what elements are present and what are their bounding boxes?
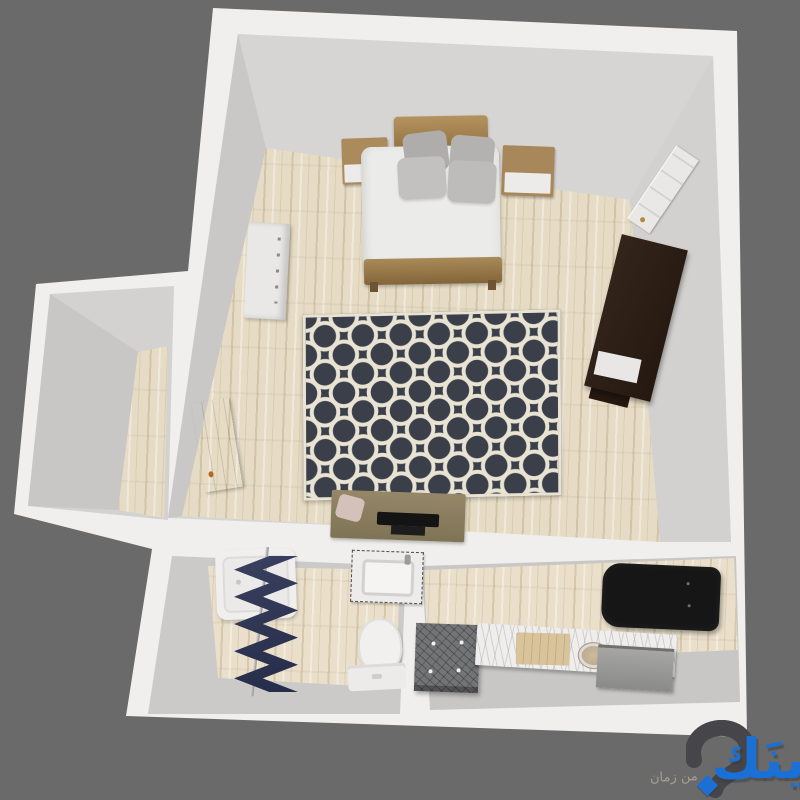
toilet-flush-button-icon [372, 674, 382, 680]
wardrobe-shelf-gap [594, 351, 642, 384]
vanity-sink [350, 550, 424, 604]
bed-leg-left [370, 282, 378, 292]
watermark: من زمان وينَك [600, 700, 800, 800]
dresser-handle-dots [274, 238, 280, 304]
monitor [377, 512, 440, 528]
cutting-board [516, 632, 571, 665]
dresser-white [244, 222, 291, 320]
bed-pillow-front-right [447, 160, 497, 204]
tuft-button-icon [428, 669, 432, 673]
faucet-icon [404, 555, 410, 565]
monitor-base [391, 525, 425, 535]
nightstand-right-front [504, 172, 551, 194]
sofa-stitch-dot-1 [687, 582, 690, 585]
area-rug-quatrefoil [303, 309, 562, 500]
vanity-basin [361, 559, 414, 597]
tuft-button-icon [459, 640, 463, 644]
bed-leg-right [488, 280, 496, 290]
floorplan-scene: من زمان وينَك [0, 0, 800, 800]
ottoman-tufted [414, 623, 480, 693]
toilet-tank [347, 663, 406, 692]
stove-appliance [596, 644, 674, 692]
sofa-stitch-dot-2 [688, 604, 691, 607]
door-leaning-knob-icon [208, 471, 214, 478]
bed-pillow-front-left [397, 156, 447, 200]
tuft-button-icon [457, 668, 461, 672]
sofa-black [601, 562, 722, 631]
door-knob-icon [639, 216, 646, 223]
watermark-brand: وينَك [640, 732, 800, 787]
bed-footboard [364, 257, 502, 285]
nightstand-right [501, 145, 555, 197]
tuft-button-icon [431, 641, 435, 645]
